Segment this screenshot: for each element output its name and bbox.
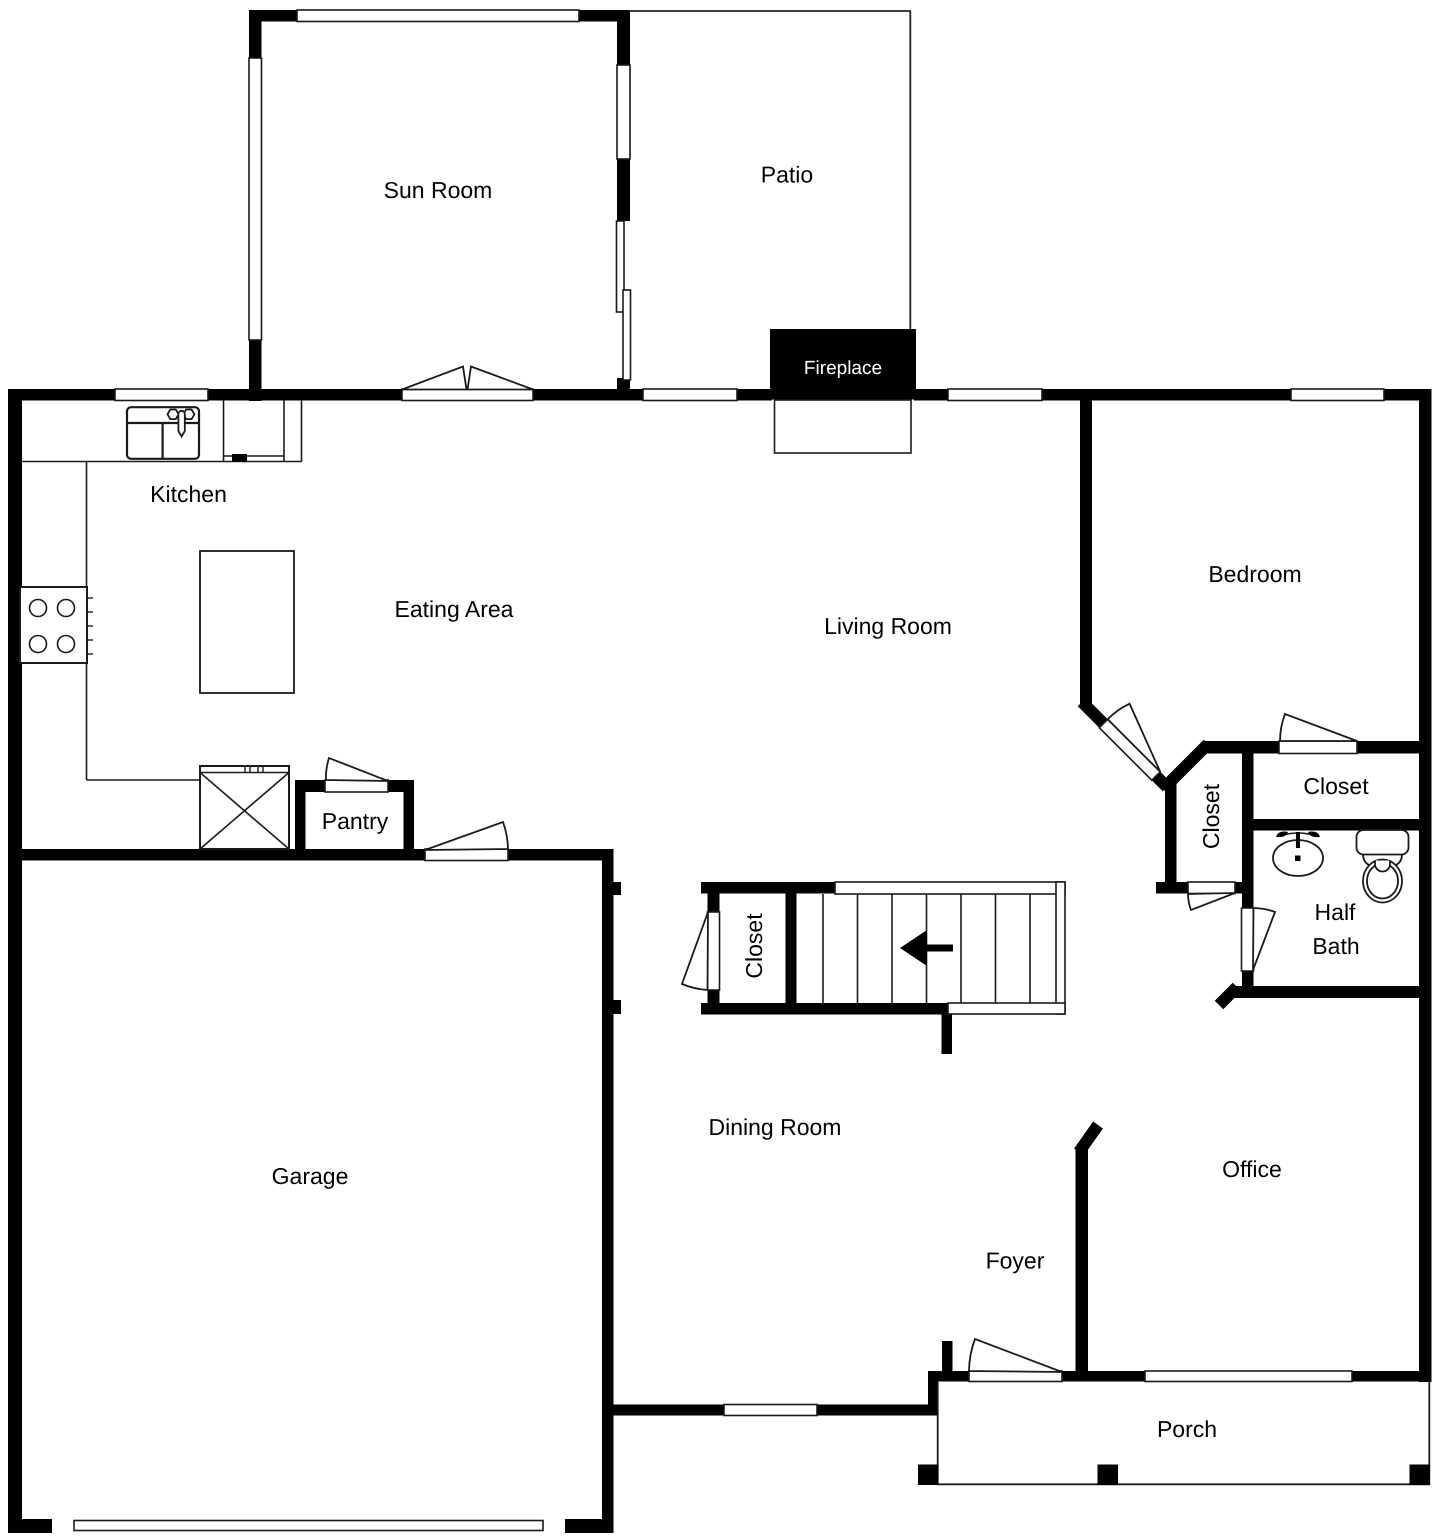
- svg-text:Closet: Closet: [741, 913, 767, 979]
- svg-text:Closet: Closet: [1198, 783, 1224, 849]
- svg-text:Garage: Garage: [272, 1163, 349, 1189]
- svg-text:Eating Area: Eating Area: [395, 596, 514, 622]
- svg-text:Foyer: Foyer: [986, 1248, 1045, 1274]
- svg-text:Pantry: Pantry: [322, 808, 389, 834]
- svg-text:Sun Room: Sun Room: [384, 177, 493, 203]
- svg-text:Patio: Patio: [761, 162, 813, 188]
- svg-text:Living Room: Living Room: [824, 613, 952, 639]
- svg-text:Half: Half: [1315, 899, 1357, 925]
- svg-text:Bedroom: Bedroom: [1208, 561, 1301, 587]
- svg-text:Porch: Porch: [1157, 1416, 1217, 1442]
- svg-text:Fireplace: Fireplace: [804, 358, 882, 379]
- svg-text:Office: Office: [1222, 1156, 1282, 1182]
- svg-text:Dining Room: Dining Room: [709, 1114, 842, 1140]
- svg-text:Bath: Bath: [1312, 933, 1359, 959]
- svg-text:Kitchen: Kitchen: [150, 481, 227, 507]
- svg-text:Closet: Closet: [1303, 773, 1369, 799]
